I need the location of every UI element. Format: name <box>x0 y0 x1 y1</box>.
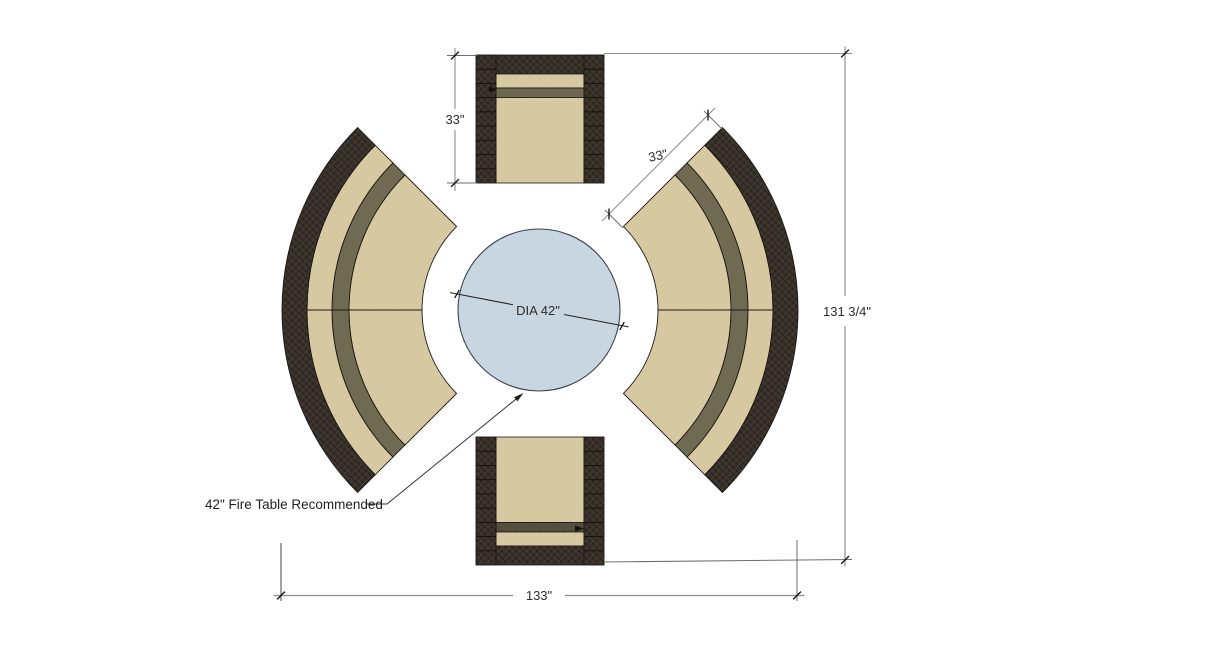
chair-wicker-back <box>496 546 584 565</box>
chair-back-cushion <box>496 74 584 88</box>
chair-wicker-arm <box>584 55 604 183</box>
dim-overall-width-label: 133" <box>526 588 553 603</box>
extension-line <box>604 560 852 563</box>
chair-back-cushion <box>496 532 584 546</box>
extension-line <box>704 111 722 129</box>
extension-line <box>605 210 623 228</box>
chair-back-band <box>496 523 584 533</box>
diagram-canvas: 33" 33" 131 3/4" 133" DIA 42" 42" Fire T… <box>0 0 1209 654</box>
dim-chair-size-label: 33" <box>445 112 464 127</box>
chair-seat-cushion <box>496 98 584 184</box>
fire-table-note-label: 42" Fire Table Recommended <box>205 497 383 512</box>
dim-fire-table-diameter-label: DIA 42" <box>516 303 560 318</box>
bottom-armchair <box>476 437 604 565</box>
chair-back-band <box>496 88 584 98</box>
top-armchair <box>476 55 604 183</box>
chair-seat-cushion <box>496 437 584 523</box>
furniture-layout-diagram: 33" 33" 131 3/4" 133" DIA 42" 42" Fire T… <box>0 0 1209 654</box>
chair-wicker-arm <box>584 437 604 565</box>
dim-overall-height-label: 131 3/4" <box>823 304 871 319</box>
chair-wicker-arm <box>476 55 496 183</box>
chair-wicker-back <box>496 55 584 74</box>
chair-wicker-arm <box>476 437 496 565</box>
left-curved-sofa-section <box>282 128 457 493</box>
right-curved-sofa-section <box>623 128 798 493</box>
dim-sofa-depth-label: 33" <box>647 146 669 165</box>
